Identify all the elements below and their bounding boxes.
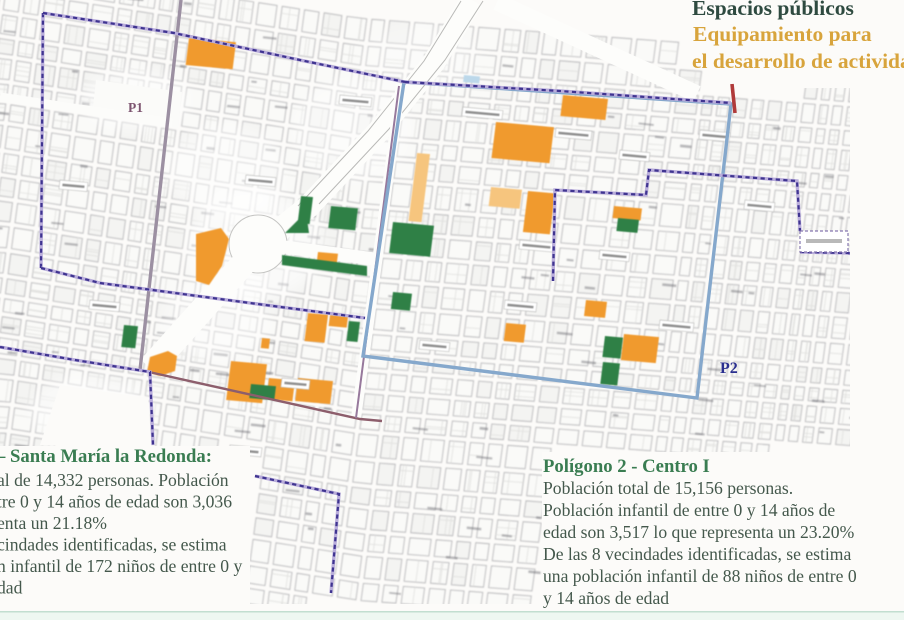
svg-text:tre 0 y 14 años de edad son 3,: tre 0 y 14 años de edad son 3,036 bbox=[0, 492, 232, 512]
svg-text:Espacios públicos: Espacios públicos bbox=[692, 0, 854, 20]
svg-text:n infantil de 172 niños de ent: n infantil de 172 niños de entre 0 y bbox=[0, 556, 242, 576]
svg-text:Polígono 2 - Centro I: Polígono 2 - Centro I bbox=[543, 456, 710, 477]
svg-text:el desarrollo de actividad: el desarrollo de actividad bbox=[692, 49, 904, 73]
svg-text:una población infantil de 88 n: una población infantil de 88 niños de en… bbox=[543, 566, 857, 586]
svg-text:dad: dad bbox=[0, 578, 23, 598]
svg-text:edad son 3,517 lo que represen: edad son 3,517 lo que representa un 23.2… bbox=[543, 522, 855, 542]
svg-text:cindades identificadas, se est: cindades identificadas, se estima bbox=[0, 535, 227, 555]
svg-text:Población total de 15,156 pers: Población total de 15,156 personas. bbox=[543, 478, 793, 498]
svg-text:y 14 años de edad: y 14 años de edad bbox=[543, 588, 669, 608]
svg-text:P2: P2 bbox=[720, 360, 738, 377]
svg-text:Población infantil de entre 0: Población infantil de entre 0 y 14 años … bbox=[543, 500, 835, 520]
svg-text:Equipamiento para: Equipamiento para bbox=[693, 22, 872, 46]
svg-text:De las 8 vecindades identifica: De las 8 vecindades identificadas, se es… bbox=[543, 544, 851, 564]
svg-text:al de 14,332 personas. Poblaci: al de 14,332 personas. Población bbox=[0, 470, 229, 490]
svg-text:P1: P1 bbox=[128, 100, 143, 115]
svg-text:enta un 21.18%: enta un 21.18% bbox=[0, 513, 107, 533]
svg-text:– Santa María la Redonda:: – Santa María la Redonda: bbox=[0, 446, 212, 467]
